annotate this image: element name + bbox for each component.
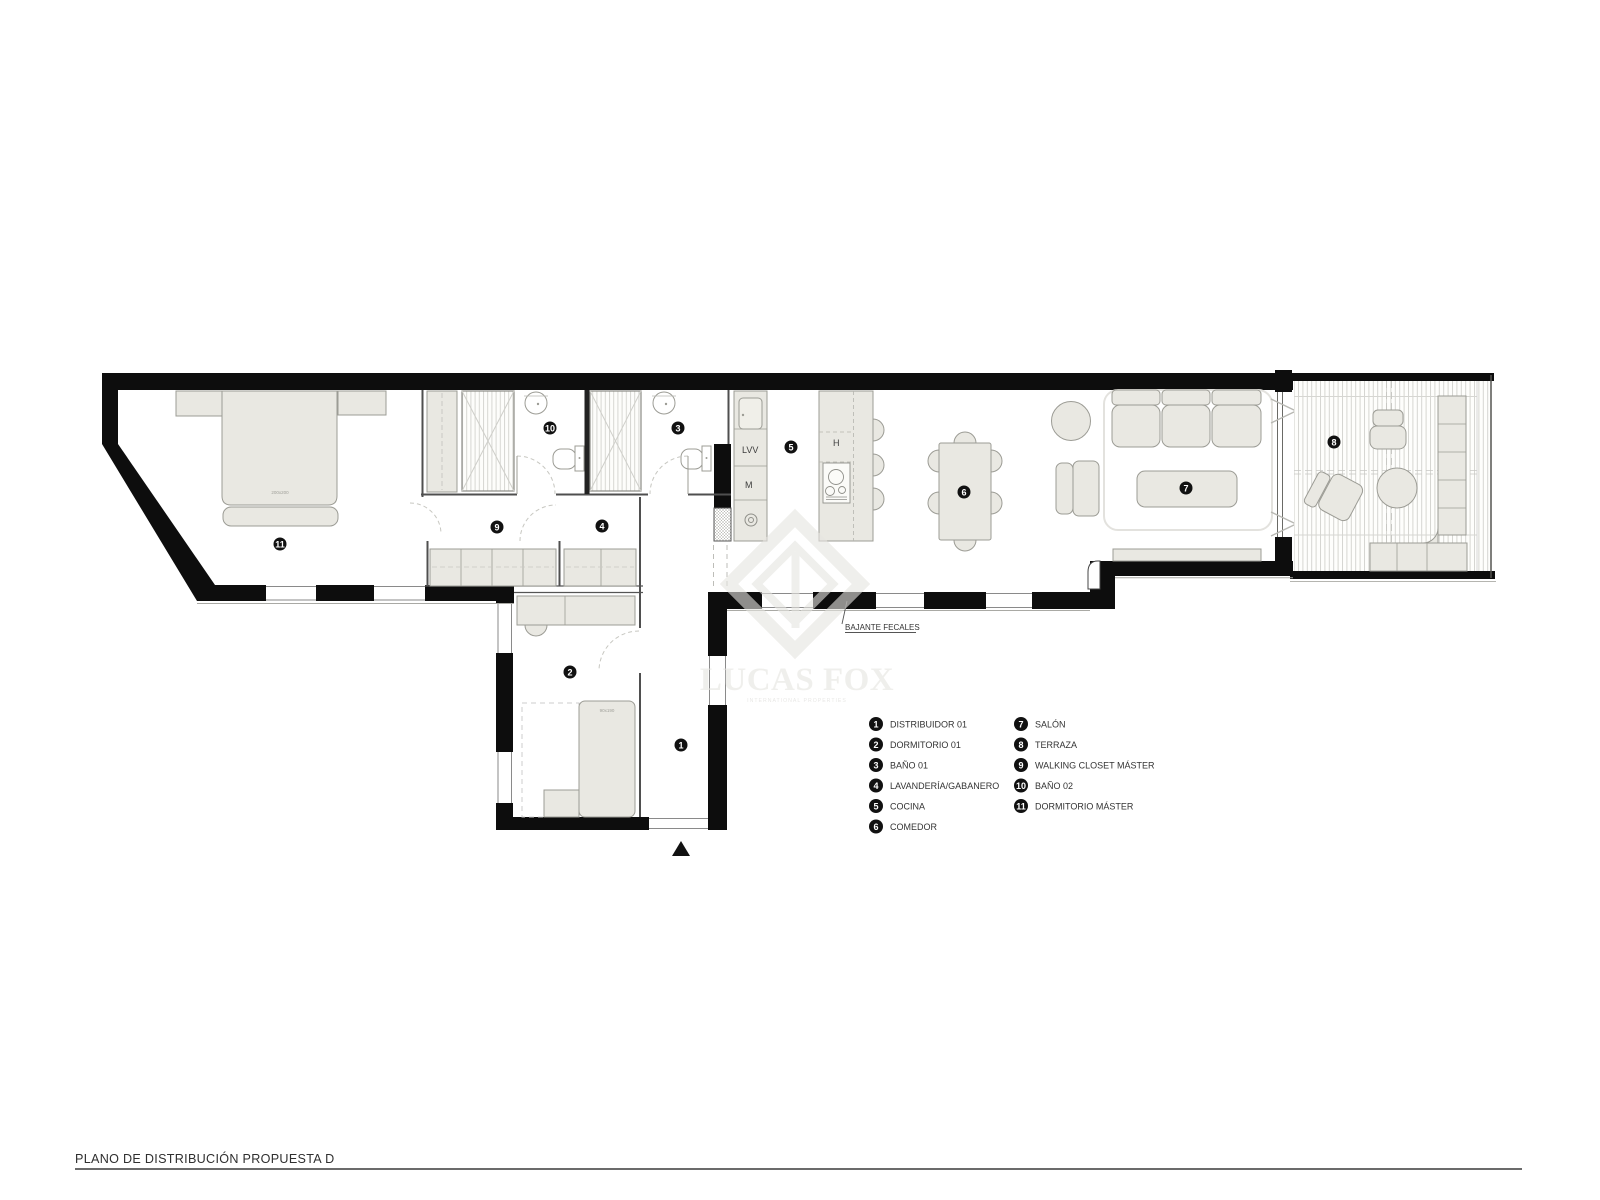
svg-text:INTERNATIONAL PROPERTIES: INTERNATIONAL PROPERTIES (747, 698, 847, 704)
svg-text:1: 1 (873, 720, 878, 730)
svg-text:10: 10 (1016, 781, 1026, 791)
svg-text:9: 9 (494, 522, 499, 532)
svg-text:DISTRIBUIDOR 01: DISTRIBUIDOR 01 (890, 720, 967, 730)
svg-text:4: 4 (599, 521, 604, 531)
svg-text:WALKING CLOSET MÁSTER: WALKING CLOSET MÁSTER (1035, 761, 1155, 771)
svg-text:10: 10 (545, 423, 555, 433)
svg-text:4: 4 (873, 781, 878, 791)
svg-text:6: 6 (873, 822, 878, 832)
svg-text:7: 7 (1018, 720, 1023, 730)
svg-text:TERRAZA: TERRAZA (1035, 740, 1077, 750)
svg-text:COCINA: COCINA (890, 802, 925, 812)
svg-text:2: 2 (567, 667, 572, 677)
svg-text:8: 8 (1331, 437, 1336, 447)
svg-text:BAÑO 01: BAÑO 01 (890, 761, 928, 771)
svg-text:11: 11 (1016, 802, 1026, 812)
svg-text:5: 5 (873, 802, 878, 812)
svg-text:LVV: LVV (742, 445, 758, 455)
svg-text:11: 11 (275, 539, 285, 549)
svg-text:7: 7 (1183, 483, 1188, 493)
svg-text:DORMITORIO 01: DORMITORIO 01 (890, 740, 961, 750)
svg-text:6: 6 (961, 487, 966, 497)
svg-text:8: 8 (1018, 740, 1023, 750)
svg-text:COMEDOR: COMEDOR (890, 822, 938, 832)
svg-text:200x200: 200x200 (271, 490, 289, 495)
svg-text:3: 3 (873, 761, 878, 771)
svg-text:H: H (833, 438, 840, 448)
svg-text:2: 2 (873, 740, 878, 750)
svg-text:9: 9 (1018, 761, 1023, 771)
svg-text:5: 5 (788, 442, 793, 452)
svg-text:1: 1 (678, 740, 683, 750)
svg-text:M: M (745, 480, 753, 490)
svg-text:LAVANDERÍA/GABANERO: LAVANDERÍA/GABANERO (890, 781, 999, 791)
svg-text:BAÑO 02: BAÑO 02 (1035, 781, 1073, 791)
svg-text:90x190: 90x190 (600, 708, 615, 713)
svg-text:3: 3 (675, 423, 680, 433)
svg-text:BAJANTE FECALES: BAJANTE FECALES (845, 623, 920, 632)
svg-text:DORMITORIO MÁSTER: DORMITORIO MÁSTER (1035, 802, 1134, 812)
svg-text:PLANO DE DISTRIBUCIÓN PROPUEST: PLANO DE DISTRIBUCIÓN PROPUESTA D (75, 1151, 335, 1166)
svg-text:SALÓN: SALÓN (1035, 720, 1066, 730)
svg-text:LUCAS FOX: LUCAS FOX (700, 662, 894, 698)
